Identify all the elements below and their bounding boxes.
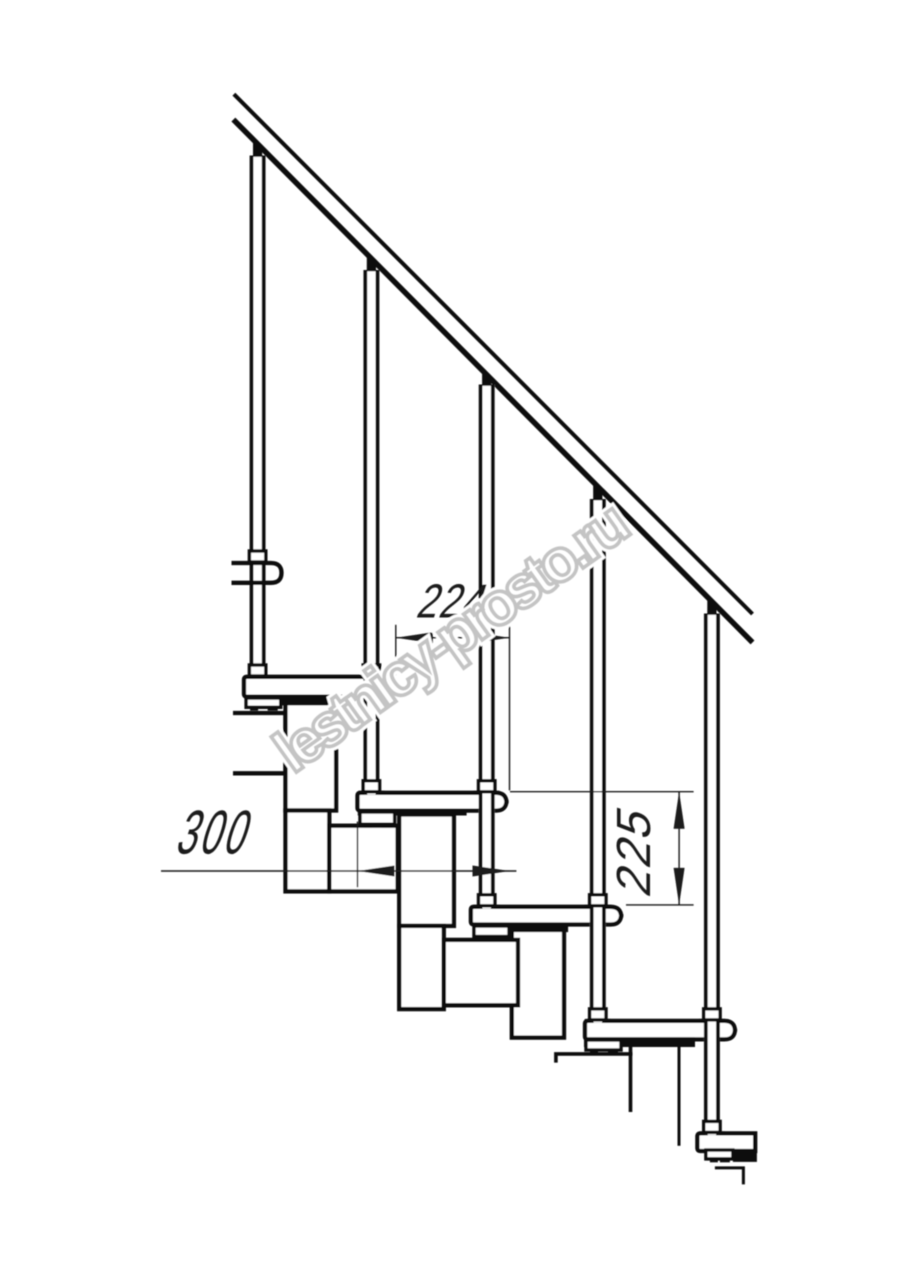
svg-text:225: 225 [607, 798, 661, 902]
svg-text:lestnicy-prosto.ru: lestnicy-prosto.ru [262, 490, 639, 785]
svg-text:300: 300 [169, 799, 262, 868]
